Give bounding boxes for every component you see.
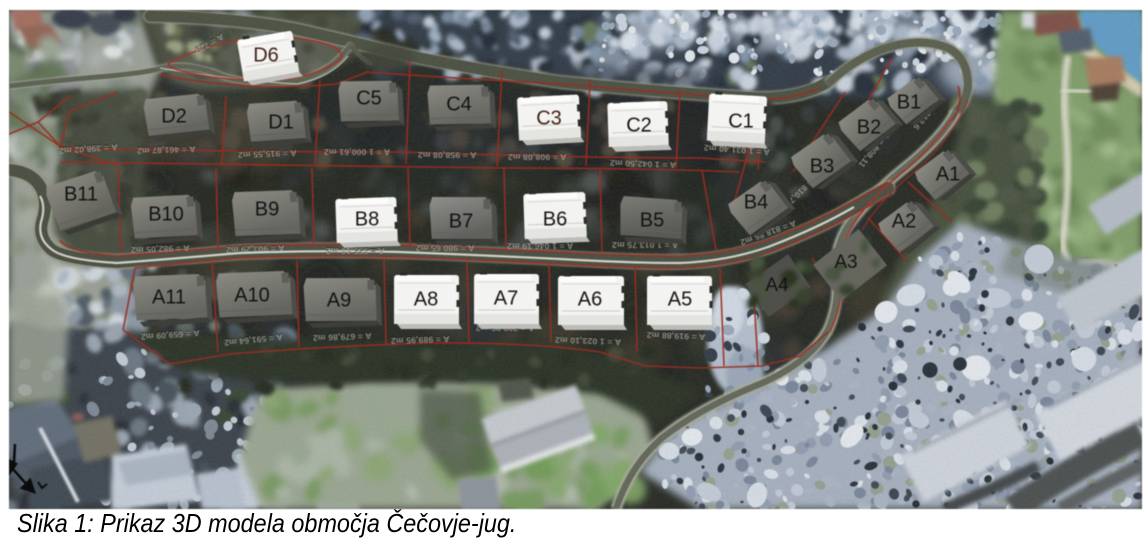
svg-text:B1: B1 [897, 91, 921, 113]
svg-text:A2: A2 [892, 210, 916, 232]
svg-text:B3: B3 [810, 155, 834, 177]
svg-text:D1: D1 [268, 111, 294, 133]
svg-text:A = 919,88 m2: A = 919,88 m2 [646, 330, 705, 342]
svg-text:B11: B11 [64, 183, 98, 205]
svg-text:B10: B10 [148, 203, 184, 225]
svg-text:C1: C1 [728, 110, 754, 132]
svg-text:A9: A9 [327, 289, 351, 311]
svg-text:B2: B2 [857, 116, 881, 138]
svg-text:B5: B5 [640, 209, 664, 231]
svg-text:B7: B7 [449, 210, 473, 232]
svg-text:A8: A8 [414, 288, 438, 310]
svg-text:A = 903,29 m2: A = 903,29 m2 [226, 243, 285, 255]
svg-text:A = 461,87 m2: A = 461,87 m2 [137, 144, 196, 156]
svg-text:A4: A4 [765, 275, 789, 296]
svg-text:B4: B4 [744, 191, 768, 213]
svg-text:D6: D6 [253, 44, 279, 66]
svg-text:A6: A6 [578, 288, 602, 310]
svg-text:A10: A10 [234, 284, 270, 306]
svg-text:A11: A11 [152, 286, 186, 308]
svg-text:C5: C5 [356, 87, 382, 109]
svg-text:A = 958,08 m2: A = 958,08 m2 [418, 150, 477, 160]
svg-text:C4: C4 [446, 93, 472, 115]
svg-text:A3: A3 [834, 252, 857, 273]
svg-text:A = 982,05 m2: A = 982,05 m2 [131, 243, 190, 255]
svg-text:C3: C3 [536, 107, 562, 129]
svg-text:A = 1 000,61 m2: A = 1 000,61 m2 [324, 147, 390, 157]
svg-text:D2: D2 [161, 105, 187, 127]
svg-text:B9: B9 [255, 198, 279, 220]
svg-text:A1: A1 [936, 163, 960, 185]
svg-text:A = 908,08 m2: A = 908,08 m2 [508, 152, 567, 162]
svg-text:A = 679,86 m2: A = 679,86 m2 [313, 331, 372, 343]
svg-text:C2: C2 [626, 114, 652, 136]
svg-text:B6: B6 [543, 208, 567, 230]
svg-text:A5: A5 [668, 288, 692, 310]
svg-text:A = 955,10 m2: A = 955,10 m2 [326, 246, 385, 256]
svg-text:A = 915,55 m2: A = 915,55 m2 [238, 148, 297, 160]
svg-text:A = 989,95 m2: A = 989,95 m2 [391, 334, 450, 346]
svg-text:B8: B8 [355, 208, 379, 230]
svg-text:A7: A7 [494, 287, 518, 309]
